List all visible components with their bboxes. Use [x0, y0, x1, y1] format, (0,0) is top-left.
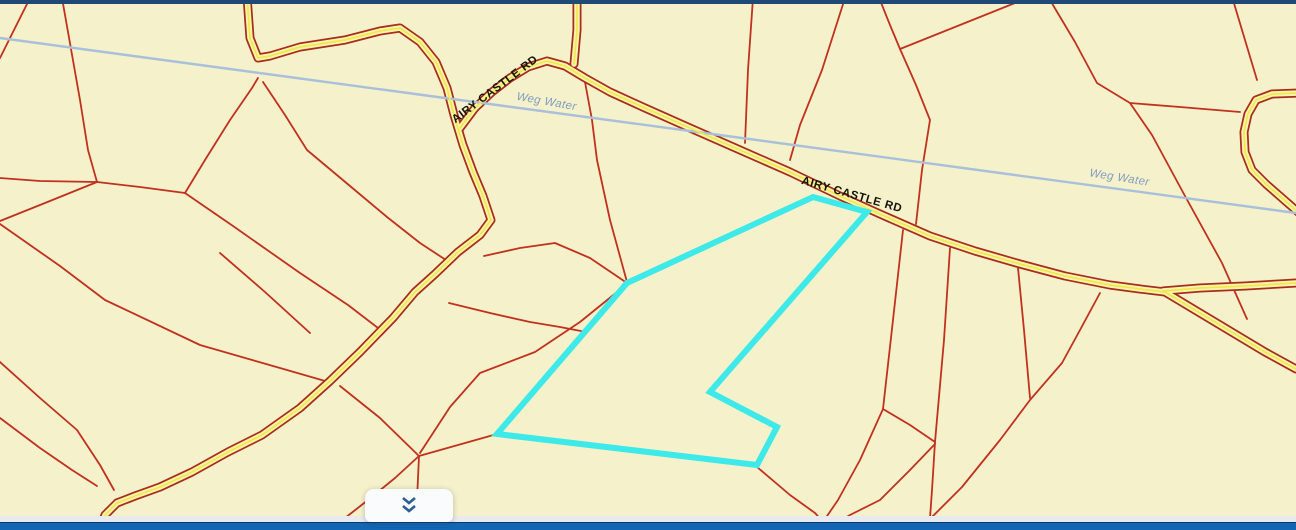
map-viewport[interactable]: AIRY CASTLE RDAIRY CASTLE RDWeg WaterWeg…	[0, 0, 1296, 530]
top-border-bar	[0, 0, 1296, 4]
map-canvas[interactable]: AIRY CASTLE RDAIRY CASTLE RDWeg WaterWeg…	[0, 0, 1296, 530]
bottom-bar	[0, 522, 1296, 530]
chevron-double-down-icon	[397, 495, 421, 517]
expand-panel-button[interactable]	[365, 489, 453, 522]
